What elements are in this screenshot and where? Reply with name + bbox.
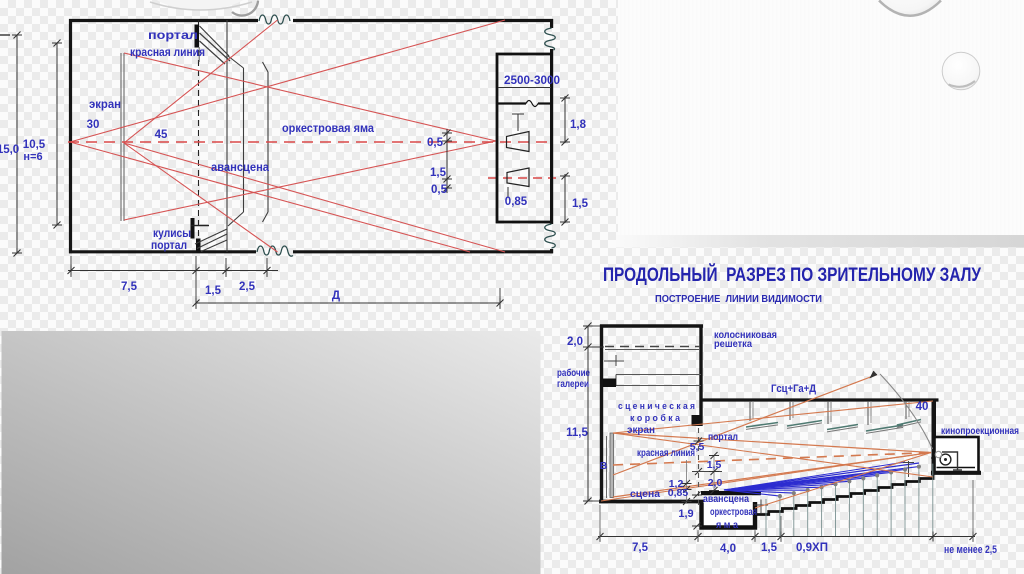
svg-text:0,9ХП: 0,9ХП [796,542,828,554]
svg-text:я м а: я м а [716,519,738,531]
svg-text:1,5: 1,5 [430,167,447,179]
svg-text:1,5: 1,5 [707,459,722,471]
svg-text:ПРОДОЛЬНЫЙ РАЗРЕЗ ПО ЗРИТЕЛЬН: ПРОДОЛЬНЫЙ РАЗРЕЗ ПО ЗРИТЕЛЬНОМУ ЗАЛУ [603,264,981,286]
svg-text:2,0: 2,0 [567,336,583,348]
svg-text:1,5: 1,5 [761,542,778,554]
svg-text:портал: портал [151,240,187,252]
svg-text:оркестровая яма: оркестровая яма [282,123,375,135]
svg-text:45: 45 [155,129,168,141]
svg-text:сцена: сцена [630,488,660,500]
svg-text:0,85: 0,85 [668,487,689,499]
svg-text:портал: портал [148,30,198,42]
svg-text:2,5: 2,5 [239,281,256,293]
svg-text:Д: Д [332,290,340,302]
svg-text:ПОСТРОЕНИЕ ЛИНИИ ВИДИМОСТИ: ПОСТРОЕНИЕ ЛИНИИ ВИДИМОСТИ [655,293,822,305]
svg-text:10,5: 10,5 [23,139,46,151]
svg-text:1,5: 1,5 [572,198,589,210]
svg-text:к о р о б к а: к о р о б к а [630,413,681,424]
svg-text:галереи: галереи [557,379,589,390]
svg-text:30: 30 [87,119,100,131]
svg-text:красная линия: красная линия [130,47,205,59]
svg-text:0,5: 0,5 [431,184,448,196]
svg-text:красная линия: красная линия [637,447,695,459]
svg-text:не менее 2,5: не менее 2,5 [944,544,997,556]
svg-text:0,5: 0,5 [427,137,444,149]
svg-text:решетка: решетка [714,339,752,350]
svg-text:7,5: 7,5 [632,542,649,554]
svg-text:0,85: 0,85 [505,196,528,208]
svg-text:авансцена: авансцена [703,493,749,505]
svg-text:2,0: 2,0 [708,477,723,489]
svg-text:н=6: н=6 [23,151,42,163]
svg-text:2500-3000: 2500-3000 [504,75,560,87]
svg-text:рабочие: рабочие [557,367,590,379]
svg-text:1,8: 1,8 [570,119,587,131]
svg-text:с ц е н и ч е с к а я: с ц е н и ч е с к а я [618,401,695,412]
svg-text:авансцена: авансцена [211,162,270,174]
svg-text:экран: экран [627,424,655,436]
svg-text:15,0: 15,0 [0,144,19,156]
svg-text:7,5: 7,5 [121,281,138,293]
svg-text:кинопроекционная: кинопроекционная [941,426,1019,437]
svg-text:портал: портал [708,431,738,443]
svg-text:1,5: 1,5 [205,285,222,297]
svg-text:11,5: 11,5 [566,427,588,439]
svg-text:оркестровая: оркестровая [710,506,757,518]
svg-text:кулисы: кулисы [153,228,191,240]
svg-text:5,5: 5,5 [690,441,705,453]
svg-text:Гсц+Га+Д: Гсц+Га+Д [771,383,816,395]
svg-text:В: В [600,460,608,472]
svg-text:40: 40 [916,401,929,413]
svg-text:4,0: 4,0 [720,543,736,555]
svg-text:экран: экран [89,99,121,111]
svg-text:1,9: 1,9 [678,508,693,520]
